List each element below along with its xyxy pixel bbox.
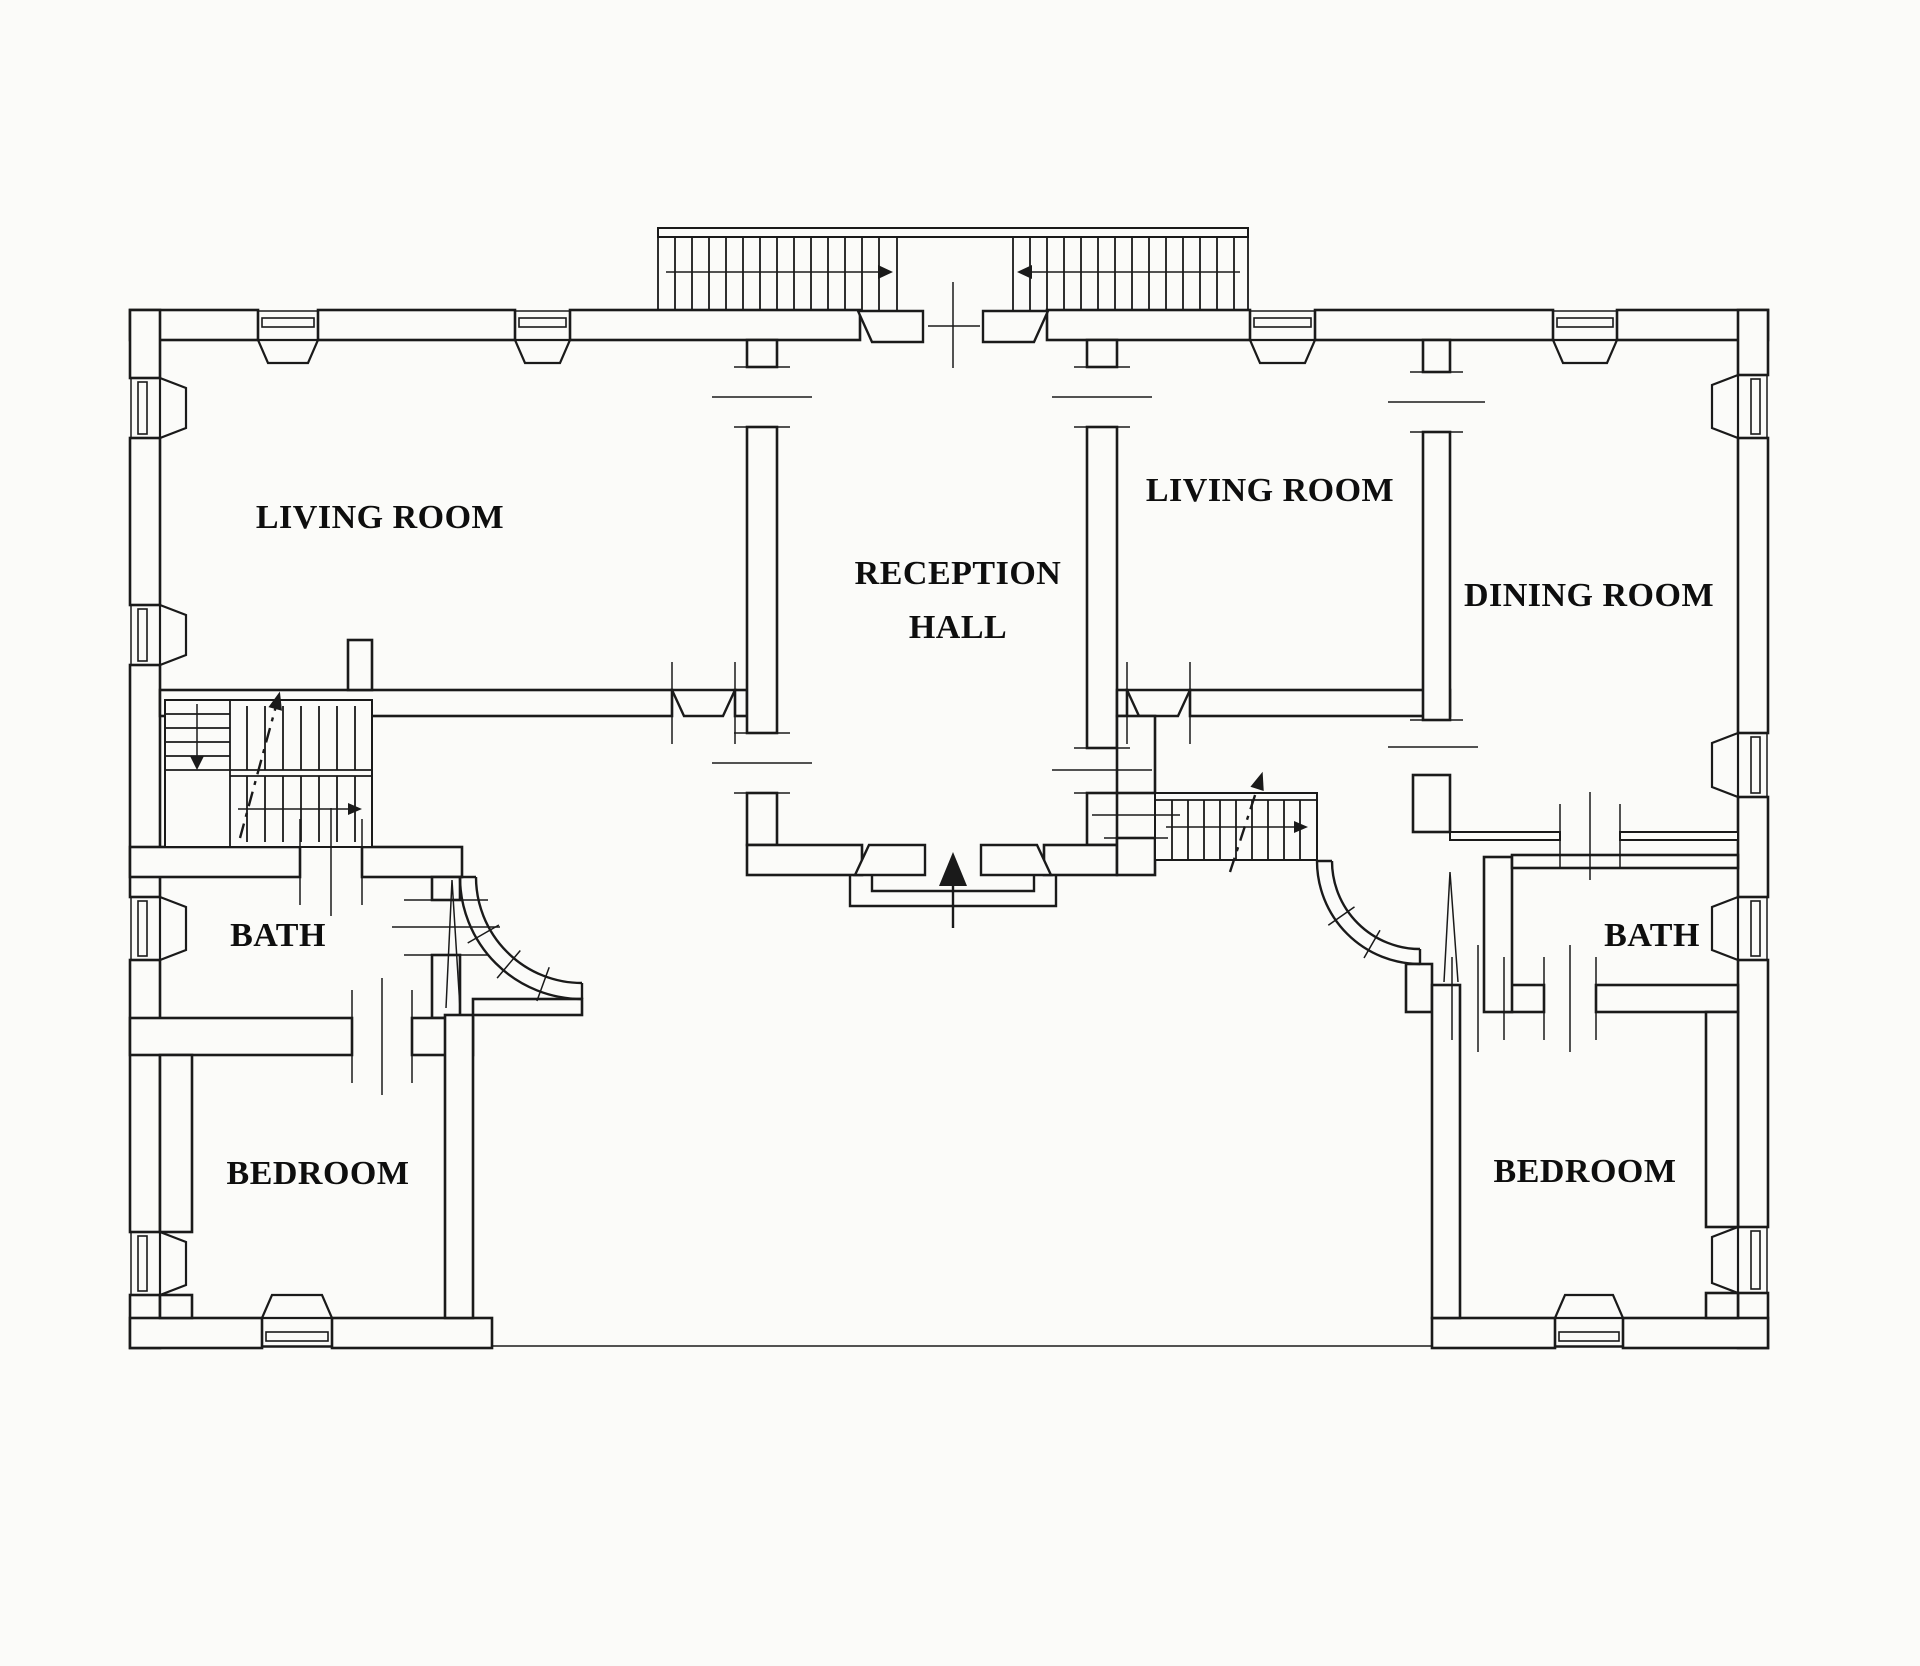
window-icon <box>1712 1227 1767 1293</box>
room-label-bath-right: BATH <box>1604 917 1700 954</box>
floor-plan-drawing: LIVING ROOM RECEPTION HALL LIVING ROOM D… <box>0 0 1920 1666</box>
room-label-living-room-left: LIVING ROOM <box>256 499 504 536</box>
window-icon <box>258 311 318 363</box>
window-icon <box>1712 897 1767 960</box>
curved-wall-left <box>460 877 582 1001</box>
room-label-bedroom-left: BEDROOM <box>227 1155 410 1192</box>
window-icon <box>131 378 186 438</box>
left-wing-walls <box>130 847 582 1318</box>
window-icon <box>131 605 186 665</box>
window-icon <box>1555 1295 1623 1347</box>
window-icon <box>1553 311 1617 363</box>
window-icon <box>515 311 570 363</box>
stair-direction-arrow-right-icon <box>1017 265 1240 279</box>
room-label-living-room-right: LIVING ROOM <box>1146 472 1394 509</box>
window-icon <box>1712 733 1767 797</box>
room-label-hall: HALL <box>909 609 1007 646</box>
outer-walls <box>130 310 1768 1348</box>
room-label-reception: RECEPTION <box>855 555 1062 592</box>
window-icon <box>1712 375 1767 438</box>
room-label-bath-left: BATH <box>230 917 326 954</box>
window-icon <box>131 1232 186 1295</box>
door-leaf-right-icon <box>1444 872 1458 982</box>
window-icon <box>262 1295 332 1347</box>
window-icon <box>131 897 186 960</box>
interior-staircase-left <box>165 690 372 847</box>
window-icon <box>1250 311 1315 363</box>
floor-plan-page: LIVING ROOM RECEPTION HALL LIVING ROOM D… <box>0 0 1920 1666</box>
room-label-bedroom-right: BEDROOM <box>1494 1153 1677 1190</box>
interior-staircase-right <box>1155 770 1317 872</box>
stair-direction-arrow-left-icon <box>666 265 893 279</box>
room-label-dining-room: DINING ROOM <box>1464 577 1714 614</box>
curved-wall-right <box>1317 861 1420 964</box>
